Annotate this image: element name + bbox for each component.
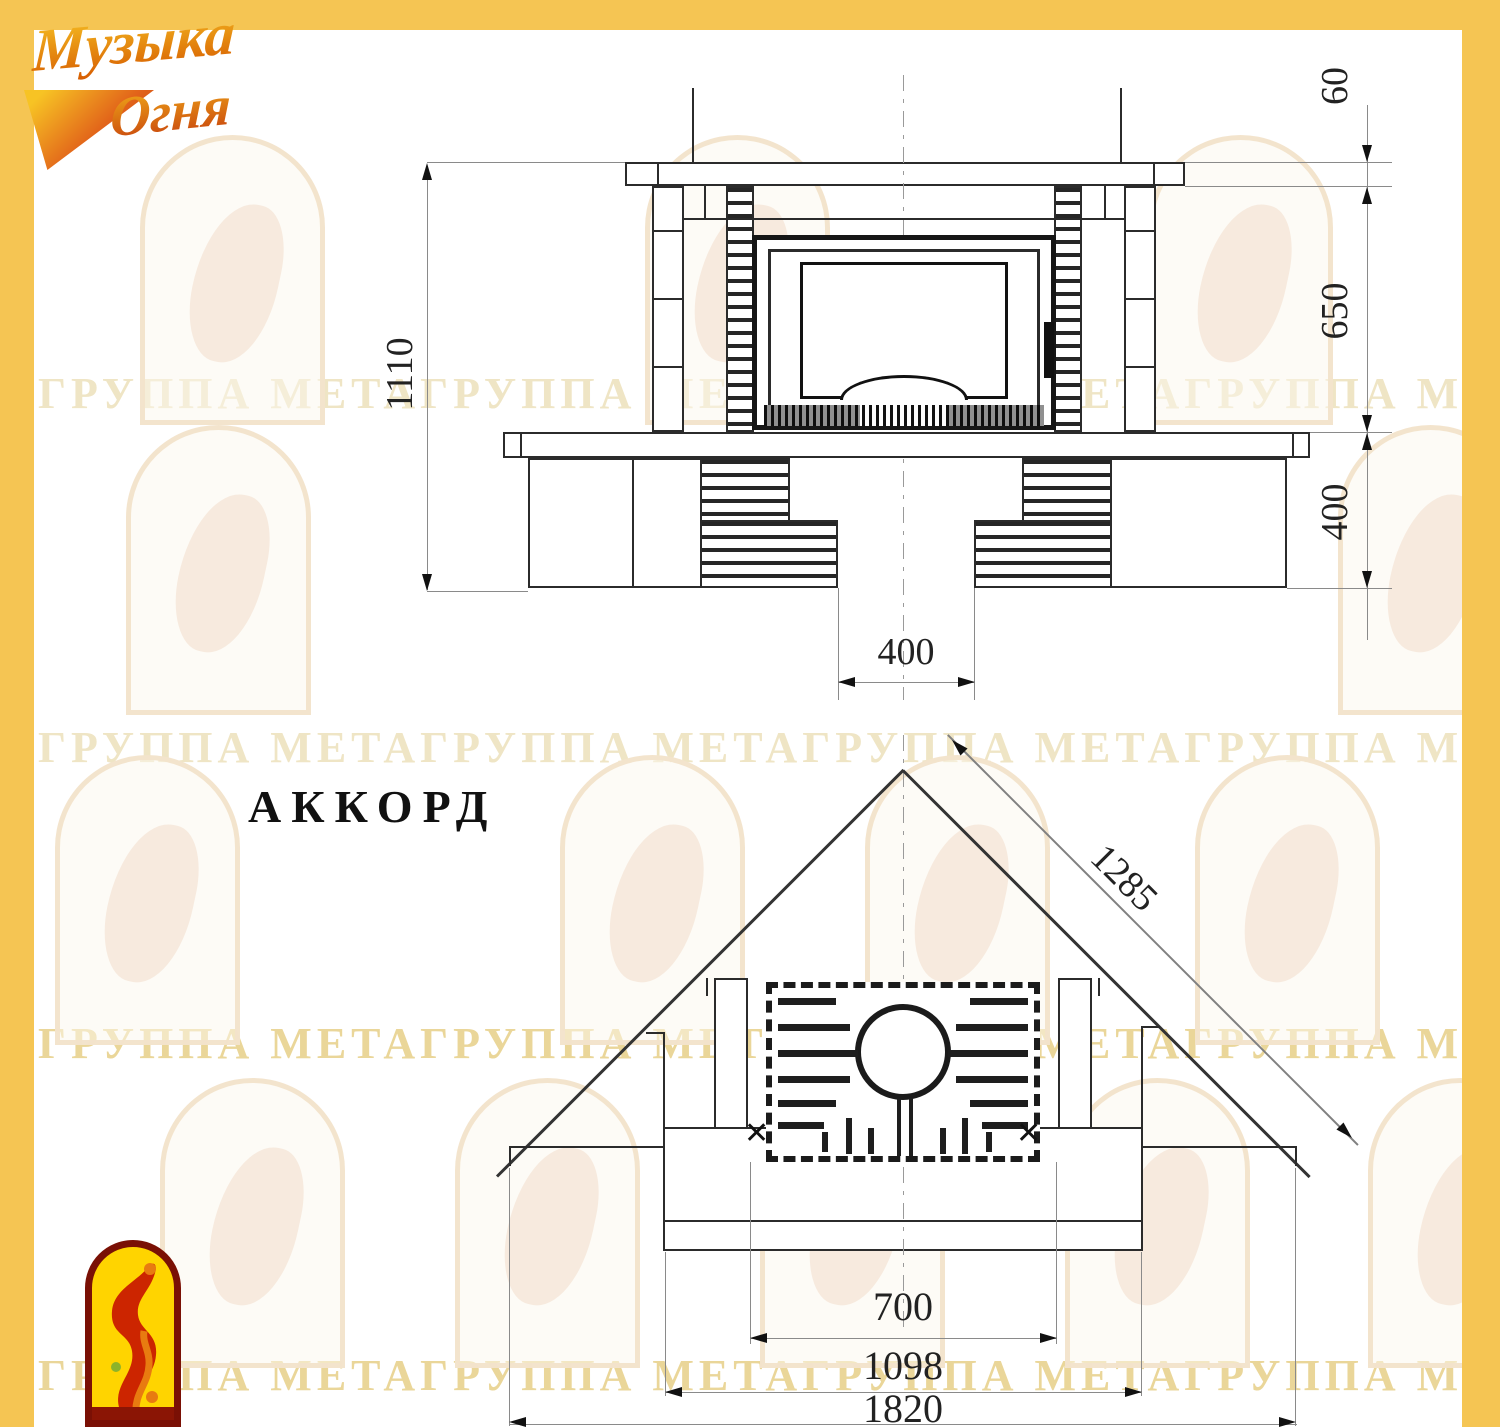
left-yellow-stripe [0, 0, 34, 1427]
ext-line [1185, 186, 1392, 187]
ext-line [1287, 588, 1392, 589]
damper-x-icon: ✕ [744, 1116, 769, 1151]
grate-tick [962, 1118, 968, 1154]
watermark-bird-shape [198, 1138, 314, 1314]
mantel-joint-right [1153, 162, 1155, 186]
pillar-notch [706, 978, 708, 996]
air-grille-end [948, 405, 1044, 426]
pillar-left-outer [652, 186, 684, 432]
logo-text-line2: Огня [109, 73, 232, 150]
flue-circle [855, 1004, 951, 1100]
ext-line [1185, 162, 1392, 163]
wall-end-cap [1295, 1146, 1297, 1166]
ext-line [665, 1252, 666, 1396]
mantel-shelf [625, 162, 1185, 186]
damper-x-icon: ✕ [1016, 1116, 1041, 1151]
model-title: АККОРД [248, 780, 497, 833]
mantel-joint-left [657, 162, 659, 186]
ext-line [1056, 1162, 1057, 1344]
ext-line [750, 1162, 751, 1344]
brand-logo: Музыка Огня [10, 2, 290, 172]
body-back-stub-right [1141, 1026, 1160, 1028]
arrow-up-icon [1362, 187, 1372, 204]
watermark-arch [55, 755, 240, 1045]
ext-line [1141, 1252, 1142, 1396]
arrow-right-icon [1125, 1387, 1142, 1397]
fin-right [948, 1050, 1028, 1057]
hearth-joint-left [520, 432, 522, 458]
fin-right [970, 998, 1028, 1005]
arrow-right-icon [1279, 1417, 1296, 1427]
watermark-arch [455, 1078, 640, 1368]
watermark-bird-shape [1233, 815, 1349, 991]
firebird-icon [92, 1247, 176, 1423]
pillar-left-plan [714, 978, 748, 1129]
lintel-line [682, 218, 1126, 220]
base-joint-left [632, 458, 634, 588]
grate-tick [868, 1128, 874, 1154]
fin-right [956, 1024, 1028, 1031]
arrow-left-icon [750, 1333, 767, 1343]
arrow-up-icon [422, 163, 432, 180]
dim-line-right [1367, 105, 1368, 640]
fin-right [956, 1076, 1028, 1083]
fin-left [778, 998, 836, 1005]
hearth-band-line [665, 1220, 1141, 1222]
hearth-shelf [503, 432, 1310, 458]
pillar-notch [1098, 978, 1100, 996]
under-shelf-joint [1104, 186, 1106, 220]
body-side-left [663, 1032, 665, 1129]
arrow-up-icon [1362, 433, 1372, 450]
arrow-down-icon [1362, 571, 1372, 588]
ext-line [509, 1168, 510, 1426]
arrow-right-icon [958, 677, 975, 687]
drawing-page: ГРУППА МЕТАГРУППА МЕТАГРУППА МЕТАГРУППА … [0, 0, 1500, 1427]
dim-line-400 [838, 682, 974, 683]
air-grille-end [764, 405, 860, 426]
arrow-down-icon [1362, 145, 1372, 162]
firebird-emblem [85, 1240, 181, 1427]
dim-1110: 1110 [378, 304, 422, 444]
dim-line-700 [750, 1338, 1056, 1339]
watermark-arch [160, 1078, 345, 1368]
ext-line [1295, 1168, 1296, 1426]
body-back-stub-left [646, 1032, 665, 1034]
watermark-arch [1195, 755, 1380, 1045]
pillar-left-slats [726, 186, 754, 432]
watermark-arch [140, 135, 325, 425]
stone-joint [652, 230, 684, 232]
watermark-bird-shape [164, 485, 280, 661]
stone-joint [1124, 298, 1156, 300]
wall-stub-left [509, 1146, 663, 1148]
stone-joint [652, 366, 684, 368]
watermark-bird-shape [93, 815, 209, 991]
watermark-bird-shape [1186, 195, 1302, 371]
dim-line-1110 [427, 166, 428, 590]
body-side-right [1141, 1026, 1143, 1129]
wall-stub-right [1143, 1146, 1297, 1148]
arrow-left-icon [838, 677, 855, 687]
fin-left [778, 1076, 850, 1083]
arrow-left-icon [509, 1417, 526, 1427]
ext-line [427, 591, 528, 592]
dim-650: 650 [1313, 241, 1357, 381]
fin-right [970, 1100, 1028, 1107]
grate-tick [940, 1128, 946, 1154]
door-handle [1044, 322, 1054, 378]
fin-left [778, 1024, 850, 1031]
chimney-line-left [692, 88, 694, 162]
base-slats-right-lower [974, 520, 1112, 588]
fin-left [778, 1050, 858, 1057]
pillar-right-slats [1054, 186, 1082, 432]
flue-rod [909, 1098, 913, 1156]
logo-text-line1: Музыка [31, 0, 237, 86]
base-block-right [1110, 458, 1287, 588]
dim-1098: 1098 [813, 1342, 993, 1389]
fin-left [778, 1122, 824, 1129]
arrow-down-icon [1362, 415, 1372, 432]
base-block-left [528, 458, 702, 588]
watermark-arch [126, 425, 311, 715]
dim-700: 700 [833, 1283, 973, 1330]
chimney-line-right [1120, 88, 1122, 162]
dim-1820: 1820 [813, 1385, 993, 1427]
pillar-right-outer [1124, 186, 1156, 432]
dim-400-front: 400 [836, 630, 976, 674]
pillar-right-plan [1058, 978, 1092, 1129]
grate-tick [846, 1118, 852, 1154]
fin-left [778, 1100, 836, 1107]
arrow-down-icon [422, 574, 432, 591]
hearth-joint-right [1292, 432, 1294, 458]
base-slats-left-upper [700, 458, 790, 522]
right-yellow-stripe [1462, 0, 1500, 1427]
base-slats-right-upper [1022, 458, 1112, 522]
under-shelf-joint [704, 186, 706, 220]
arrow-left-icon [665, 1387, 682, 1397]
stone-joint [1124, 230, 1156, 232]
ext-line [1310, 432, 1392, 433]
flue-rod [897, 1098, 901, 1156]
dim-60: 60 [1313, 36, 1357, 136]
dim-400-right: 400 [1313, 442, 1357, 582]
grate-tick [822, 1132, 828, 1152]
watermark-bird-shape [903, 815, 1019, 991]
grate-tick [986, 1132, 992, 1152]
arrow-right-icon [1040, 1333, 1057, 1343]
watermark-bird-shape [598, 815, 714, 991]
watermark-bird-shape [178, 195, 294, 371]
wall-end-cap [509, 1146, 511, 1166]
ext-line [427, 162, 625, 163]
base-slats-left-lower [700, 520, 838, 588]
stone-joint [1124, 366, 1156, 368]
dim-1285: 1285 [1082, 836, 1167, 921]
stone-joint [652, 298, 684, 300]
